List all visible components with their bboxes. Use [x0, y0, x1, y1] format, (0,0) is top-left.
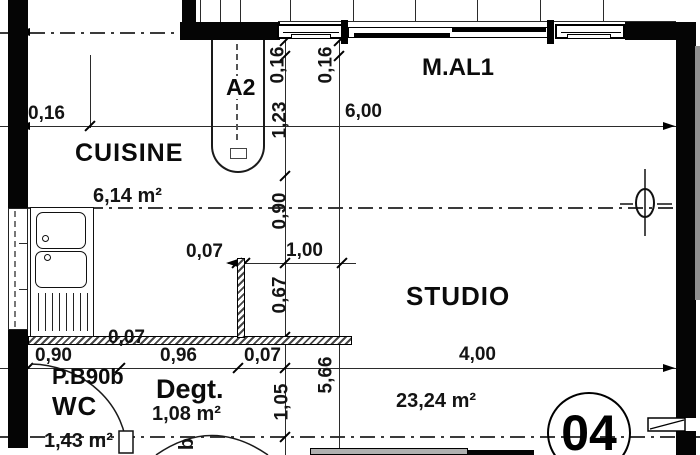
dim-small: 0,07	[244, 346, 281, 365]
wc-door-leaf	[119, 431, 133, 453]
floor-plan-canvas: CUISINE 6,14 m² STUDIO 23,24 m² WC 1,43 …	[0, 0, 700, 455]
dim-wall-left: 0,16	[28, 104, 65, 123]
door-label-bottom-partial: b	[177, 438, 197, 450]
window-sill-line	[650, 420, 684, 429]
room-area-cuisine: 6,14 m²	[93, 186, 162, 206]
dim-studio-width: 4,00	[459, 345, 496, 364]
window-label-mal1: M.AL1	[422, 56, 494, 80]
partition-vertical	[237, 258, 245, 338]
dim-v-studio: 5,66	[317, 357, 336, 394]
facade-division	[220, 0, 221, 22]
dim-v-wall-b: 0,16	[317, 47, 336, 84]
window-casement-right	[555, 24, 625, 39]
window-mullion	[341, 20, 348, 44]
wall-top-stub	[182, 0, 196, 24]
furniture-bar-gray	[310, 448, 468, 455]
furniture-bar-dark	[468, 450, 534, 455]
dim-v-door-a2: 1,23	[271, 102, 290, 139]
door-label-a2: A2	[224, 76, 257, 99]
axis-line-middle	[28, 207, 676, 209]
unit-number-badge: 04	[547, 392, 631, 455]
window-glass-line	[283, 32, 339, 33]
window-mullion	[547, 20, 554, 44]
facade-division	[200, 0, 201, 22]
kitchen-sink-bottom	[35, 251, 87, 288]
sink-drain	[44, 254, 51, 261]
dimension-arrow	[663, 122, 675, 130]
shaft-tick	[19, 243, 27, 244]
dim-v-opening-lower: 0,67	[271, 277, 290, 314]
window-sill-right	[648, 418, 685, 431]
shaft-tick	[19, 289, 27, 290]
room-label-cuisine: CUISINE	[75, 141, 183, 166]
sliding-panel-a	[354, 33, 450, 37]
sliding-panel-b	[452, 28, 546, 32]
room-label-studio: STUDIO	[406, 283, 510, 309]
facade-division	[240, 0, 241, 22]
dim-opening: 1,00	[286, 241, 323, 260]
dim-v-wall-a: 0,16	[269, 47, 288, 84]
ceiling-light-icon	[636, 189, 654, 217]
window-sash	[291, 34, 331, 39]
wall-top-left	[180, 22, 280, 40]
dim-partition-thickness: 0,07	[186, 242, 223, 261]
bottom-door-swing-arc	[156, 436, 268, 455]
facade-division	[477, 0, 478, 22]
dim-v-cuisine: 0,90	[271, 193, 290, 230]
room-area-wc: 1,43 m²	[44, 431, 113, 451]
room-area-degagement: 1,08 m²	[152, 404, 221, 424]
facade-division	[290, 0, 291, 22]
adjacent-wall-strip	[695, 46, 700, 300]
window-casement-left	[277, 24, 343, 39]
duct-shaft	[8, 208, 28, 330]
dimension-chain-right	[339, 40, 340, 455]
sink-drain	[42, 235, 49, 242]
door-a2-detail	[230, 148, 247, 159]
dim-degt-width: 0,96	[160, 346, 197, 365]
facade-division	[540, 0, 541, 22]
facade-division	[603, 0, 604, 22]
wall-left-lower	[8, 330, 28, 448]
wall-right-upper	[676, 22, 696, 418]
dimension-line-opening	[228, 263, 356, 264]
extension-line	[90, 55, 91, 128]
dim-wc-width: 0,90	[35, 346, 72, 365]
dimension-line-top	[0, 126, 676, 127]
unit-number-text: 04	[561, 408, 617, 455]
wall-right-lower	[676, 431, 696, 455]
shaft-dashed-line	[14, 211, 16, 327]
facade-division	[415, 0, 416, 22]
dim-total-width: 6,00	[345, 102, 382, 121]
wall-left-upper	[8, 0, 28, 208]
room-area-studio: 23,24 m²	[396, 391, 476, 411]
kitchen-sink-top	[36, 212, 86, 249]
door-label-pb90b: P.B90b	[52, 366, 124, 388]
dim-bottom-wall-thickness: 0,07	[108, 328, 145, 347]
facade-division	[353, 0, 354, 22]
window-glass-line	[561, 32, 621, 33]
window-sash	[567, 34, 611, 39]
room-label-degagement: Degt.	[156, 376, 224, 403]
partition-horizontal	[28, 336, 352, 345]
dim-v-degt: 1,05	[273, 384, 292, 421]
dimension-arrow	[663, 364, 675, 372]
room-label-wc: WC	[52, 393, 97, 419]
drainboard-lines	[38, 293, 91, 331]
wall-top-right	[625, 22, 676, 40]
